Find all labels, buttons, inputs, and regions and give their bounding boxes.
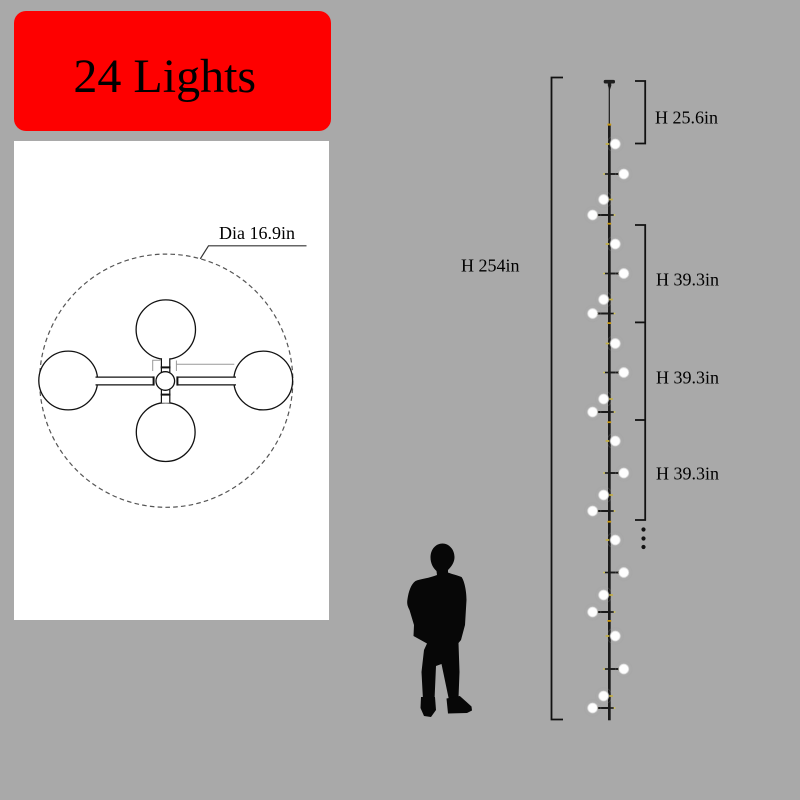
svg-text:Dia 16.9in: Dia 16.9in xyxy=(219,223,295,243)
svg-text:H 39.3in: H 39.3in xyxy=(656,368,719,388)
svg-text:H 39.3in: H 39.3in xyxy=(656,464,719,484)
svg-text:H 25.6in: H 25.6in xyxy=(655,108,718,128)
svg-text:H 254in: H 254in xyxy=(461,256,520,276)
svg-text:H 39.3in: H 39.3in xyxy=(656,270,719,290)
